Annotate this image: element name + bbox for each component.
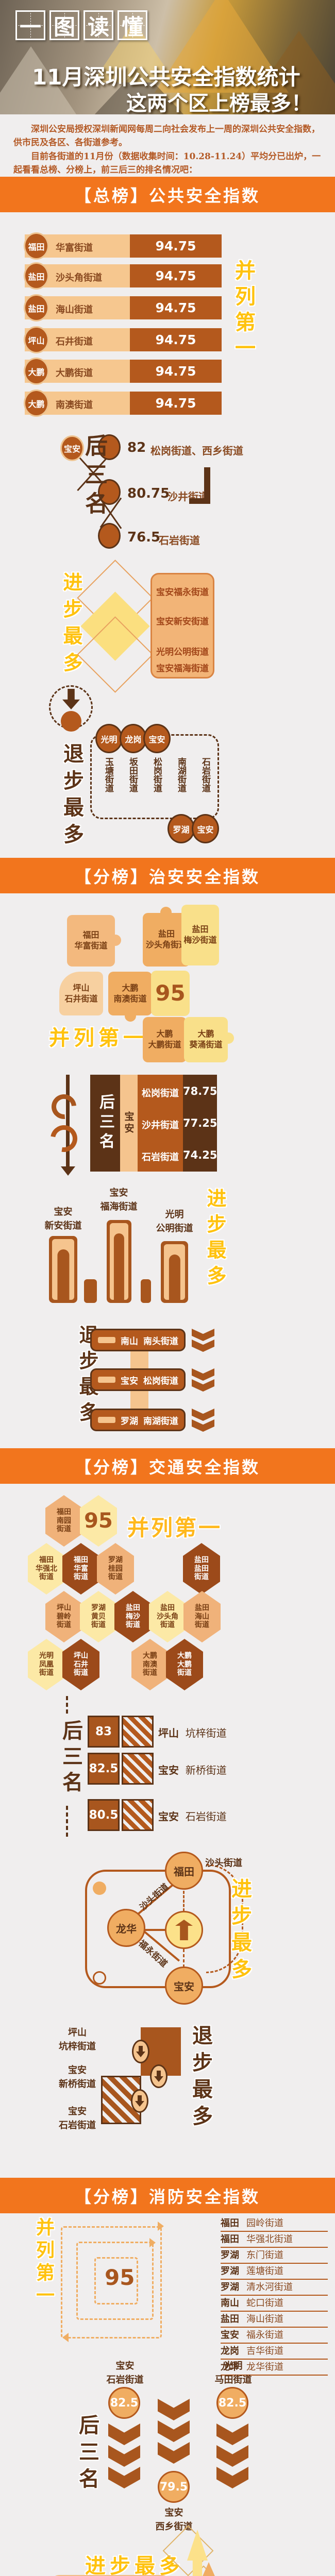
score-circle: 82.5 [108, 2387, 140, 2419]
chevron-down-icon [216, 2467, 248, 2488]
chevron-down-icon [192, 1419, 214, 1432]
banner-zhian: 【分榜】治安安全指数 [0, 858, 335, 893]
declined-label: 坪山坑梓街道 [52, 2026, 103, 2054]
score-circle: 82.5 [216, 2387, 248, 2419]
district-label: 大鹏 [122, 983, 138, 994]
score-value: 77.25 [183, 1117, 217, 1129]
decline-title: 退步最多 [186, 2025, 215, 2132]
network-line [144, 1929, 167, 1931]
intro-paragraph-2: 目前各街道的11月份（数据收集时间：10.28-11.24）平均分已出炉，一起看… [13, 150, 322, 177]
dot-circle [93, 1882, 106, 1895]
improve-bar [49, 1236, 77, 1303]
bottom-item-label: 宝安 石岩街道 [158, 1808, 227, 1823]
declined-street: 松岗街道 [150, 757, 163, 814]
bottom-three-title: 后三名 [72, 2414, 102, 2495]
first-list-item: 福田华强北街道 [221, 2232, 328, 2248]
score-value: 80.75 [127, 486, 170, 501]
swirl-arrow [45, 1120, 82, 1157]
district-label: 大鹏 [156, 1029, 173, 1040]
tied-first-title: 并列第一 [228, 260, 258, 363]
district-label: 大鹏 [197, 1029, 214, 1040]
chevron-down-icon [158, 2399, 190, 2420]
street-label: 石岩街道 [138, 1150, 183, 1163]
chevron-down-icon [192, 1329, 214, 1341]
improved-list-box: 宝安福永街道 宝安新安街道 光明公明街道 宝安福海街道 [150, 573, 214, 679]
first-list-item: 罗湖清水河街道 [221, 2280, 328, 2296]
street-label: 沙井街道 [138, 1118, 183, 1131]
hex-street: 罗湖黄贝街道 [80, 1591, 117, 1642]
hex-street: 福田华富街道 [62, 1543, 99, 1595]
hex-street: 盐田盐田街道 [183, 1543, 220, 1595]
bottom-three-title: 后三名 [77, 434, 110, 520]
hex-score: 95 [80, 1495, 117, 1547]
district-label: 盐田 [158, 929, 175, 940]
improve-bar [161, 1241, 188, 1303]
street-label: 沙头角街道 [146, 940, 187, 951]
dot-circle [61, 711, 81, 732]
street-label: 新安街道 [36, 1219, 90, 1233]
street-label: 松岗街道 [143, 1374, 178, 1386]
district-column: 宝安 [120, 1075, 138, 1172]
improved-street: 光明公明街道 [152, 645, 213, 657]
bar-label: 宝安新安街道 [36, 1205, 90, 1233]
intro-paragraph-1: 深圳公安局授权深圳新闻网每周二向社会发布上一周的深圳公共安全指数，供市民及各区、… [13, 123, 322, 150]
score-value: 94.75 [130, 234, 222, 258]
small-bar [141, 1279, 151, 1303]
score-value: 95 [105, 2265, 135, 2290]
district-badge: 坪山 [24, 326, 49, 353]
chevron-down-icon [192, 1409, 214, 1421]
declined-street: 石岩街道 [199, 757, 212, 814]
hex-street: 盐田沙头角街道 [149, 1591, 186, 1642]
first-list-item: 南山蛇口街道 [221, 2296, 328, 2312]
district-label: 福田 [82, 930, 99, 941]
improve-title: 进步最多 [201, 1188, 229, 1291]
chevron-down-icon [192, 1368, 214, 1381]
bottom-three-title: 后三名 [56, 1720, 86, 1797]
hex-street: 坪山石井街道 [62, 1639, 99, 1690]
declined-item: 罗湖南湖街道 [90, 1409, 186, 1431]
score-value: 76.5 [127, 530, 160, 545]
district-badge: 盐田 [24, 262, 49, 290]
street-label: 梅沙街道 [183, 935, 216, 946]
score-value: 94.75 [130, 328, 222, 351]
down-oval [150, 2064, 167, 2088]
puzzle-piece: 盐田梅沙街道 [181, 905, 219, 965]
rank-circle [98, 523, 121, 549]
chevron-down-icon [158, 2420, 190, 2442]
bottom-three-title: 后三名 [94, 1094, 116, 1153]
arrow-line [66, 1075, 70, 1168]
logo-char-box: 图 [49, 10, 79, 40]
street-label: 华富街道 [74, 941, 107, 952]
district-label: 光明 [147, 1208, 202, 1222]
hatched-square [122, 1716, 154, 1748]
intro: 深圳公安局授权深圳新闻网每周二向社会发布上一周的深圳公共安全指数，供市民及各区、… [0, 114, 335, 177]
bottom-label: 光明马田街道 [204, 2359, 263, 2387]
score-value: 78.75 [183, 1085, 217, 1097]
hatched-square [122, 1753, 154, 1785]
district-label: 宝安 [92, 1186, 146, 1200]
score-value: 94.75 [130, 264, 222, 287]
declined-label: 宝安石岩街道 [52, 2105, 103, 2132]
section-traffic: 福田南园街道 95 并列第一 福田华强北街道 福田华富街道 罗湖桂园街道 盐田盐… [0, 1484, 335, 2178]
bottom-item-label: 宝安 新桥街道 [158, 1762, 227, 1777]
bar-label: 光明公明街道 [147, 1208, 202, 1235]
score-square: 80.5 [88, 1799, 120, 1831]
district-badge: 大鹏 [24, 389, 49, 417]
street-label: 沙头街道 [205, 1856, 242, 1869]
district-badge: 大鹏 [24, 358, 49, 385]
banner-traffic: 【分榜】交通安全指数 [0, 1448, 335, 1484]
up-node [165, 1911, 203, 1949]
street-label: 石井街道 [64, 994, 97, 1005]
hex-street: 大鹏大鹏街道 [166, 1639, 203, 1690]
dash-line [66, 1806, 68, 1837]
arrow-head [158, 2222, 169, 2231]
district-badge: 罗湖 [167, 814, 195, 843]
hex-street: 福田南园街道 [45, 1495, 82, 1547]
down-oval [132, 2040, 149, 2063]
district-badge: 宝安 [192, 814, 219, 843]
chevron-down-icon [108, 2445, 140, 2467]
logo-char-box: 一 [15, 10, 45, 40]
street-label: 沙头角街道 [56, 270, 102, 284]
section-fire: 并列第一 95 福田园岭街道 福田华强北街道 罗湖东门街道 罗湖莲塘街道 罗湖清… [0, 2213, 335, 2576]
chevron-down-icon [158, 2442, 190, 2464]
logo-char-box: 懂 [118, 10, 147, 40]
improve-title: 进步最多 [225, 1878, 255, 1985]
chevron-down-icon [108, 2467, 140, 2488]
hex-street: 坪山碧岭街道 [45, 1591, 82, 1642]
hex-street: 光明凤凰街道 [28, 1639, 65, 1690]
tied-first-title: 并列第一 [30, 2217, 57, 2308]
district-label: 罗湖 [121, 1414, 138, 1427]
declined-item: 宝安松岗街道 [90, 1368, 186, 1391]
street-label: 华富街道 [56, 241, 93, 254]
chevron-down-icon [108, 2424, 140, 2445]
puzzle-piece: 大鹏南澳街道 [108, 972, 152, 1015]
declined-label: 宝安新桥街道 [52, 2063, 103, 2091]
district-badge: 盐田 [24, 294, 49, 321]
first-list-item: 罗湖莲塘街道 [221, 2264, 328, 2280]
street-label: 海山街道 [56, 302, 93, 316]
improved-street: 宝安福海街道 [152, 661, 213, 674]
score-column: 78.75 77.25 74.25 [183, 1075, 217, 1172]
puzzle-piece-score: 95 [151, 971, 190, 1016]
bottom-label: 宝安石岩街道 [95, 2359, 155, 2387]
score-value: 74.25 [183, 1149, 217, 1161]
tied-first-title: 并列第一 [49, 1021, 148, 1051]
declined-street: 坂田街道 [126, 757, 139, 814]
street-label: 大鹏街道 [148, 1040, 181, 1050]
dash-line [66, 1696, 68, 1714]
street-label: 南澳街道 [113, 994, 146, 1005]
hex-street: 盐田海山街道 [183, 1591, 221, 1642]
street-label: 福海街道 [92, 1200, 146, 1214]
tied-first-title: 并列第一 [127, 1511, 222, 1542]
improved-street: 宝安福永街道 [152, 585, 213, 598]
declined-item: 南山南头街道 [90, 1329, 186, 1351]
bottom-item-label: 坪山 坑梓街道 [158, 1725, 227, 1740]
street-column: 松岗街道 沙井街道 石岩街道 [138, 1075, 183, 1172]
bar-label: 宝安福海街道 [92, 1186, 146, 1214]
improve-bar [107, 1220, 131, 1303]
small-bar [84, 1279, 97, 1303]
chevron-down-icon [192, 1340, 214, 1352]
district-badge: 光明 [95, 724, 123, 753]
connector [130, 1351, 148, 1370]
district-label: 盐田 [192, 924, 208, 935]
bottom-label: 宝安西乡街道 [144, 2506, 204, 2534]
score-value: 94.75 [130, 360, 222, 383]
declined-street: 玉塘街道 [102, 757, 115, 814]
dashed-line [183, 1891, 185, 1911]
street-label: 石岩街道 [159, 532, 200, 547]
down-oval [131, 2089, 148, 2113]
score-square: 83 [88, 1716, 120, 1748]
chevron-down-icon [216, 2445, 248, 2467]
first-list-item: 福田园岭街道 [221, 2216, 328, 2232]
chevron-down-icon [216, 2424, 248, 2445]
first-list-item: 盐田海山街道 [221, 2312, 328, 2328]
banner-overall: 【总榜】公共安全指数 [0, 177, 335, 212]
district-label: 宝安 [122, 1111, 136, 1135]
district-badge: 宝安 [143, 724, 171, 753]
score-square: 82.5 [88, 1753, 120, 1785]
header: 一 图 读 懂 11月深圳公共安全指数统计 这两个区上榜最多！ [0, 0, 335, 114]
score-value: 82 [127, 440, 146, 455]
score-circle: 79.5 [158, 2471, 190, 2503]
first-list-item: 宝安福永街道 [221, 2328, 328, 2344]
decline-title: 退步最多 [57, 743, 87, 850]
district-label: 宝安 [36, 1205, 90, 1219]
puzzle-piece: 大鹏葵涌街道 [184, 1017, 228, 1062]
district-label: 宝安 [121, 1374, 138, 1386]
street-label: 南澳街道 [56, 398, 93, 411]
street-label: 南头街道 [143, 1334, 178, 1347]
main-title-line2: 这两个区上榜最多！ [126, 87, 312, 114]
logo-char-box: 读 [83, 10, 113, 40]
arrow-head [61, 1166, 75, 1183]
bottom-three-header: 后三名 [90, 1075, 120, 1172]
score-value: 94.75 [130, 392, 222, 415]
district-badge: 福田 [24, 232, 49, 260]
street-label: 公明街道 [147, 1222, 202, 1235]
improved-street: 宝安新安街道 [152, 614, 213, 627]
street-label: 葵涌街道 [189, 1040, 222, 1050]
connector [130, 1391, 148, 1410]
district-label: 南山 [121, 1334, 138, 1347]
puzzle-piece: 福田华富街道 [67, 915, 115, 967]
hex-street: 罗湖桂园街道 [97, 1543, 134, 1595]
street-label: 石井街道 [56, 334, 93, 348]
district-label: 坪山 [73, 983, 89, 994]
bracket [189, 498, 210, 504]
hex-street: 盐田梅沙街道 [114, 1591, 152, 1642]
score-value: 95 [155, 979, 185, 1008]
first-list-item: 龙岗吉华街道 [221, 2344, 328, 2360]
first-list-item: 罗湖东门街道 [221, 2248, 328, 2264]
hex-street: 大鹏南澳街道 [131, 1639, 169, 1690]
score-value: 94.75 [130, 296, 222, 319]
chevron-down-icon [192, 1379, 214, 1392]
hex-street: 福田华强北街道 [28, 1543, 65, 1595]
infographic-page: 一 图 读 懂 11月深圳公共安全指数统计 这两个区上榜最多！ 深圳公安局授权深… [0, 0, 335, 2576]
street-label: 松岗街道、西乡街道 [150, 443, 243, 457]
banner-fire: 【分榜】消防安全指数 [0, 2178, 335, 2213]
hatched-square [122, 1799, 154, 1831]
section-overall: 94.75 福田 华富街道 94.75 盐田 沙头角街道 94.75 盐田 海山… [0, 212, 335, 858]
street-label: 松岗街道 [138, 1086, 183, 1099]
dashed-line [183, 1949, 185, 1968]
swirl-arrow [46, 1089, 81, 1124]
arrow-head [58, 2333, 69, 2342]
street-label: 大鹏街道 [56, 366, 93, 379]
dot-circle [93, 1971, 106, 1985]
arrow-head [149, 2238, 160, 2247]
street-label: 南湖街道 [143, 1414, 178, 1427]
declined-street: 南湖街道 [175, 757, 188, 814]
puzzle-piece: 坪山石井街道 [59, 972, 103, 1015]
section-zhian: 福田华富街道 盐田沙头角街道 盐田梅沙街道 坪山石井街道 大鹏南澳街道 95 并… [0, 893, 335, 1448]
puzzle-piece: 大鹏大鹏街道 [143, 1017, 187, 1062]
